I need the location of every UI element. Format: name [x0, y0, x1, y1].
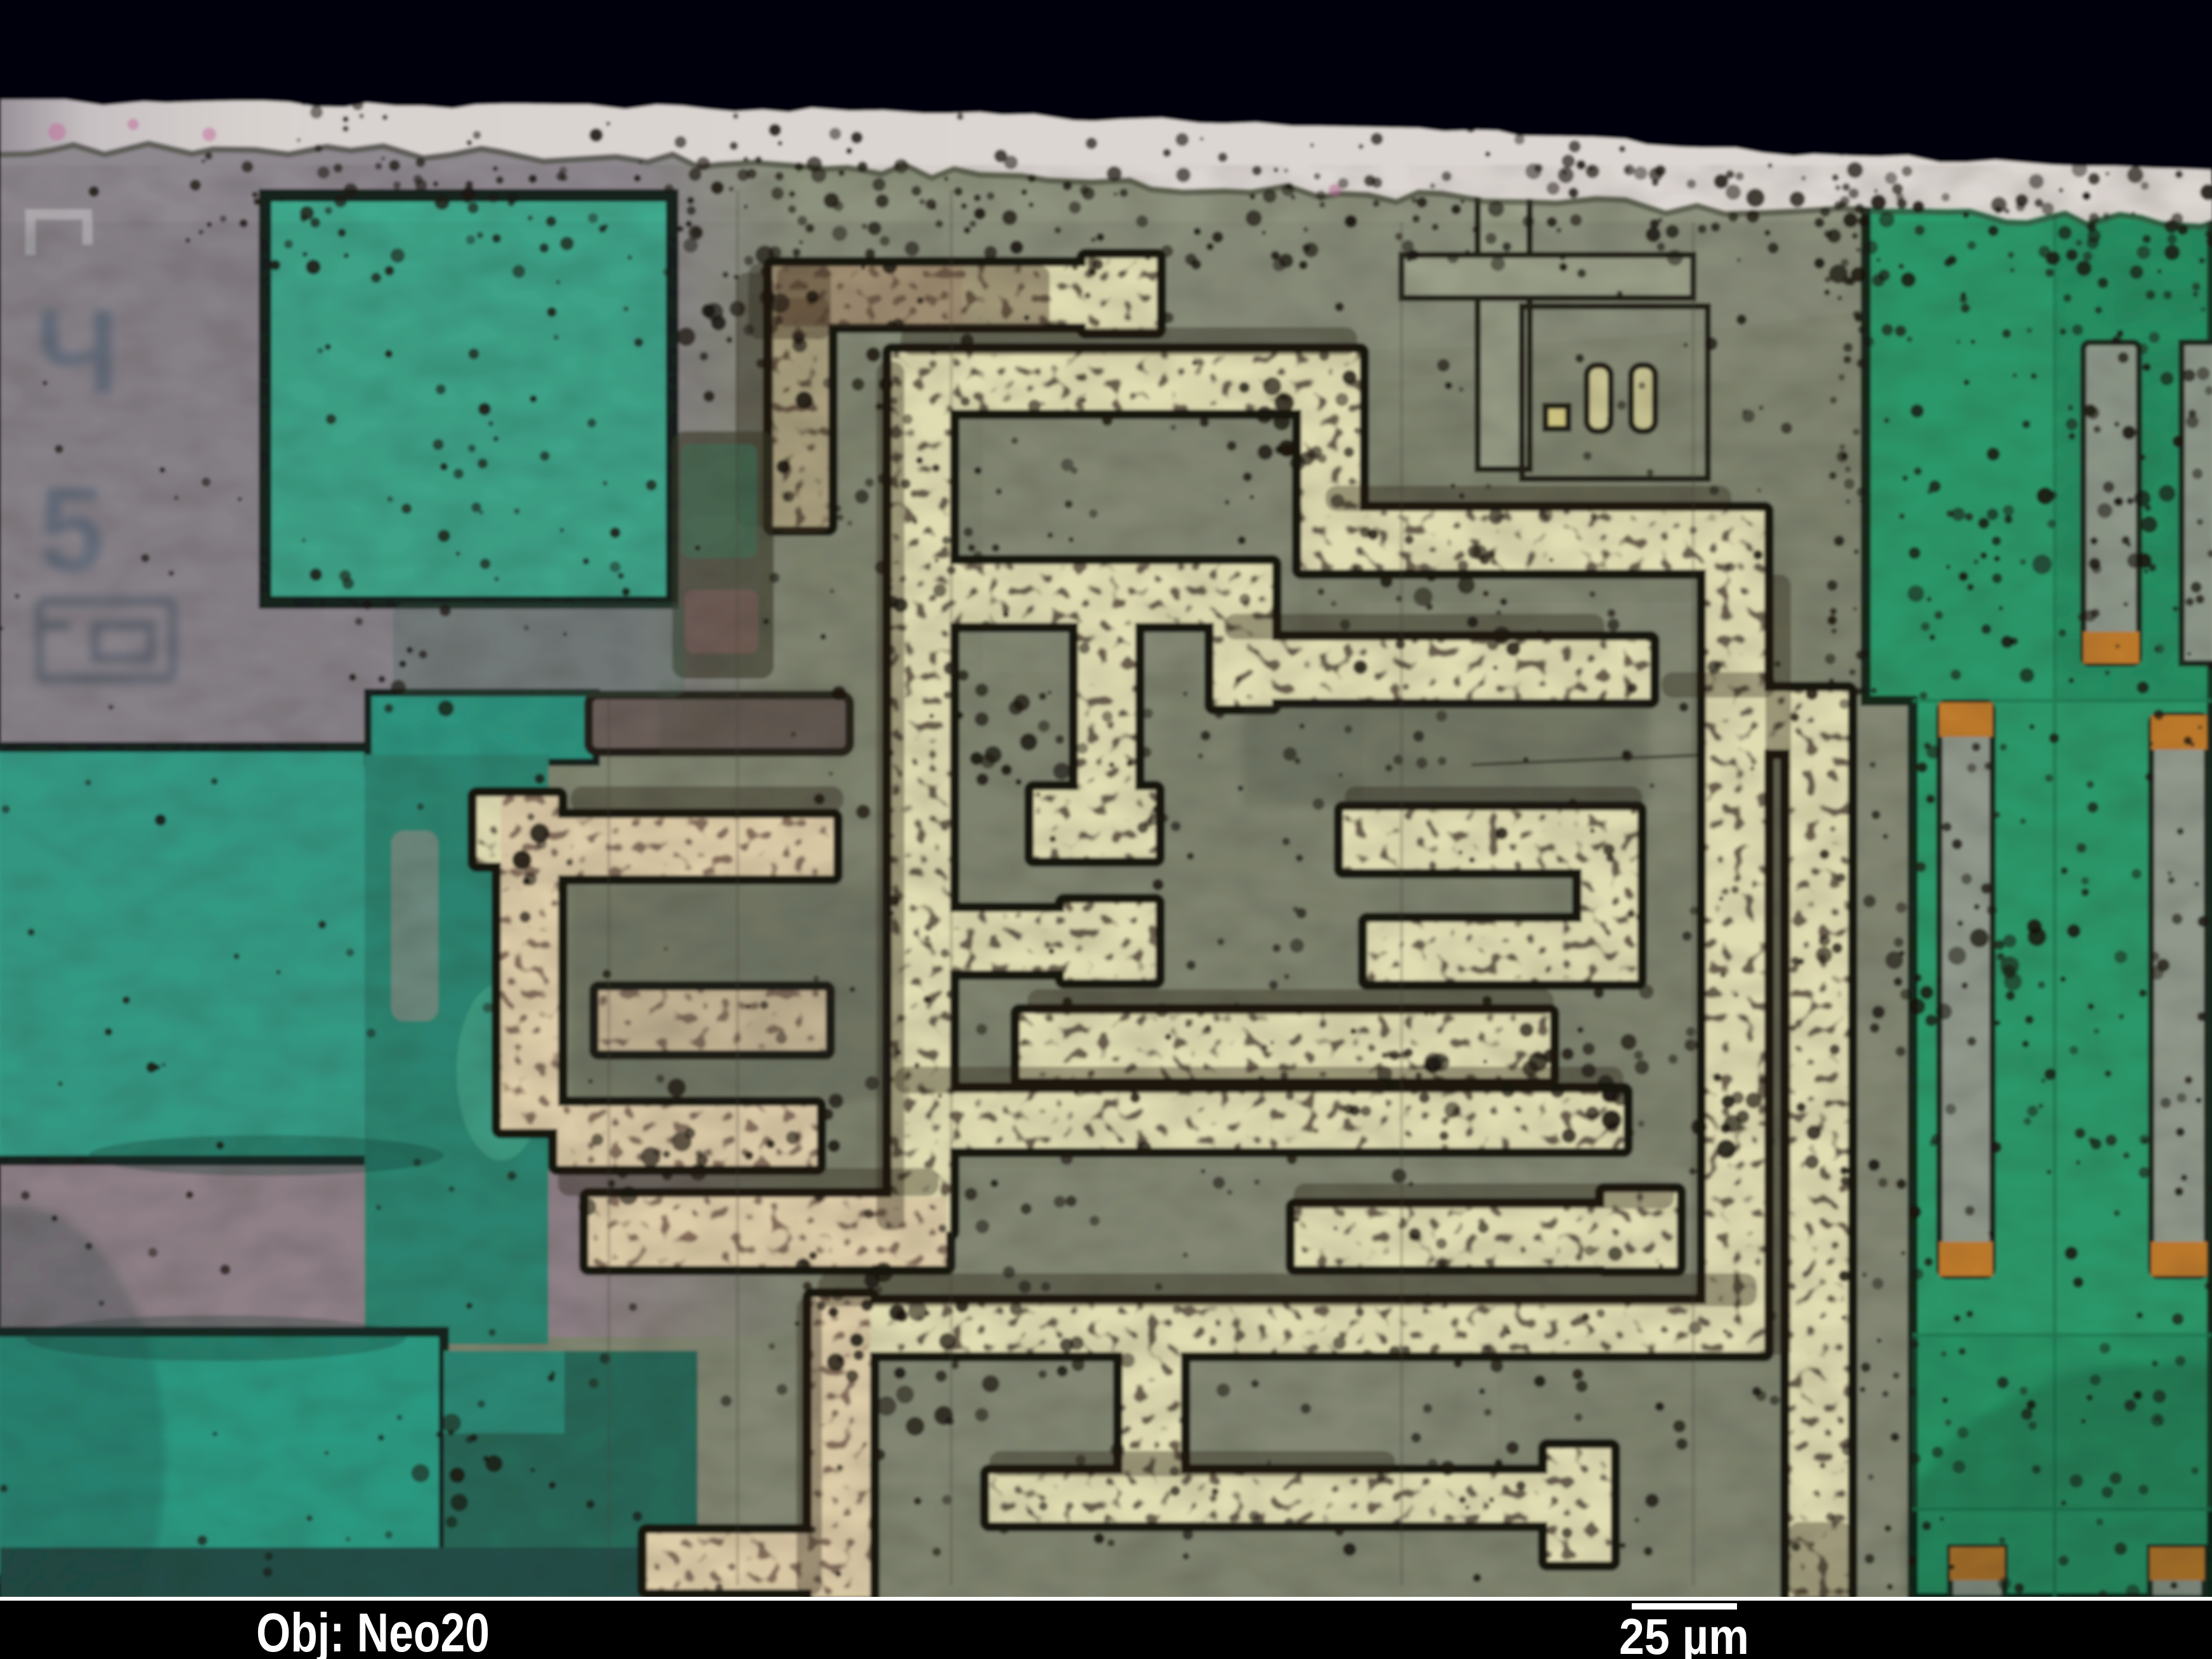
svg-text:25 µm: 25 µm — [1619, 1608, 1749, 1659]
svg-text:Obj: Neo20: Obj: Neo20 — [256, 1603, 490, 1659]
